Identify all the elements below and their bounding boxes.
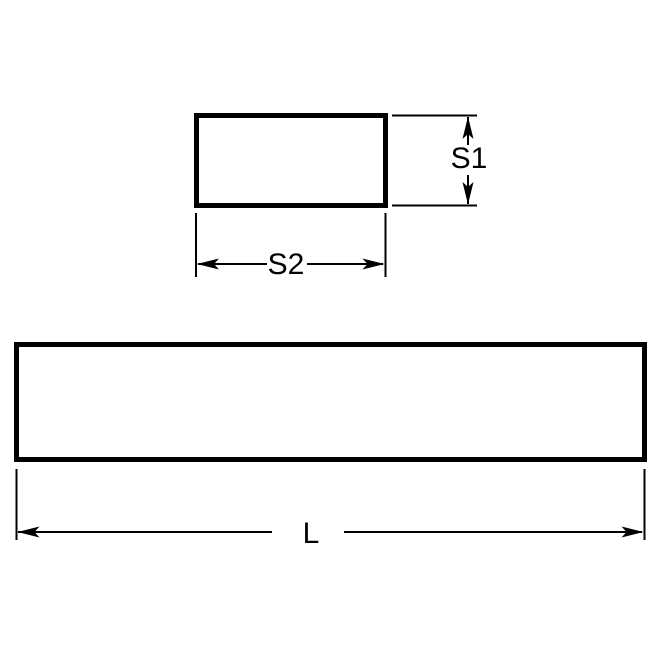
s2-label: S2 [268, 248, 305, 281]
s2-dimension: S2 [196, 213, 386, 281]
cross-section-view: S1 S2 [196, 116, 487, 282]
s1-dimension: S1 [392, 116, 487, 206]
dimension-drawing-canvas: S1 S2 L [0, 0, 670, 670]
s1-label: S1 [451, 142, 488, 175]
length-rectangle [17, 345, 645, 460]
cross-section-rectangle [197, 116, 386, 206]
l-dimension: L [17, 469, 645, 550]
keystock-dimension-diagram: S1 S2 L [0, 0, 670, 670]
l-label: L [303, 517, 320, 550]
length-view: L [17, 345, 645, 551]
